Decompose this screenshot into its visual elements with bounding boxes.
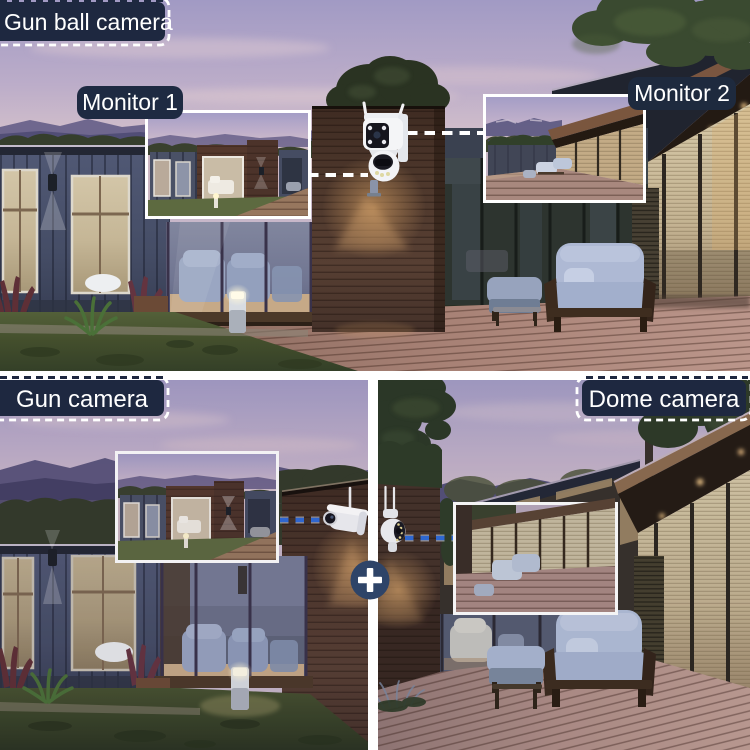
svg-text:Monitor 1: Monitor 1 (82, 89, 178, 115)
svg-text:Monitor 2: Monitor 2 (634, 80, 730, 106)
svg-text:Gun camera: Gun camera (16, 386, 149, 413)
svg-text:Gun ball camera: Gun ball camera (4, 9, 173, 35)
svg-text:Dome camera: Dome camera (589, 386, 740, 413)
